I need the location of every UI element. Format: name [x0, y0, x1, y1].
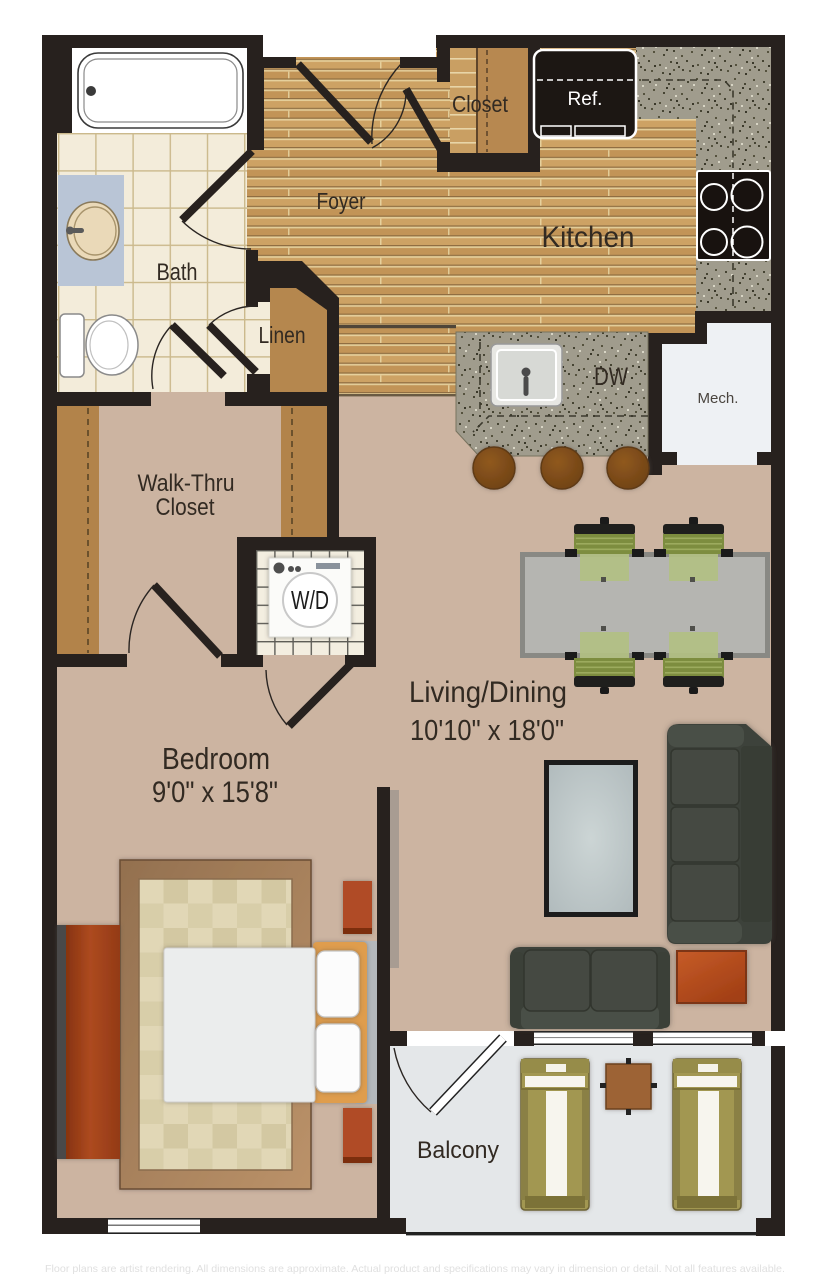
svg-text:Walk-Thru: Walk-Thru	[138, 470, 235, 497]
svg-text:Closet: Closet	[452, 91, 509, 117]
svg-text:10'10" x 18'0": 10'10" x 18'0"	[410, 715, 564, 747]
svg-text:Mech.: Mech.	[698, 390, 739, 407]
svg-text:DW: DW	[594, 363, 628, 391]
svg-text:Ref.: Ref.	[568, 89, 603, 110]
svg-text:9'0" x 15'8": 9'0" x 15'8"	[152, 776, 278, 809]
svg-text:Foyer: Foyer	[317, 188, 366, 214]
svg-text:Balcony: Balcony	[417, 1137, 499, 1164]
svg-text:Kitchen: Kitchen	[542, 221, 635, 254]
svg-text:Bedroom: Bedroom	[162, 741, 270, 776]
svg-text:Linen: Linen	[259, 322, 306, 348]
svg-text:Living/Dining: Living/Dining	[409, 676, 567, 709]
svg-text:Closet: Closet	[156, 494, 215, 521]
svg-text:Floor plans are artist renderi: Floor plans are artist rendering. All di…	[45, 1263, 785, 1275]
svg-text:W/D: W/D	[291, 585, 329, 615]
svg-text:Bath: Bath	[157, 259, 198, 286]
